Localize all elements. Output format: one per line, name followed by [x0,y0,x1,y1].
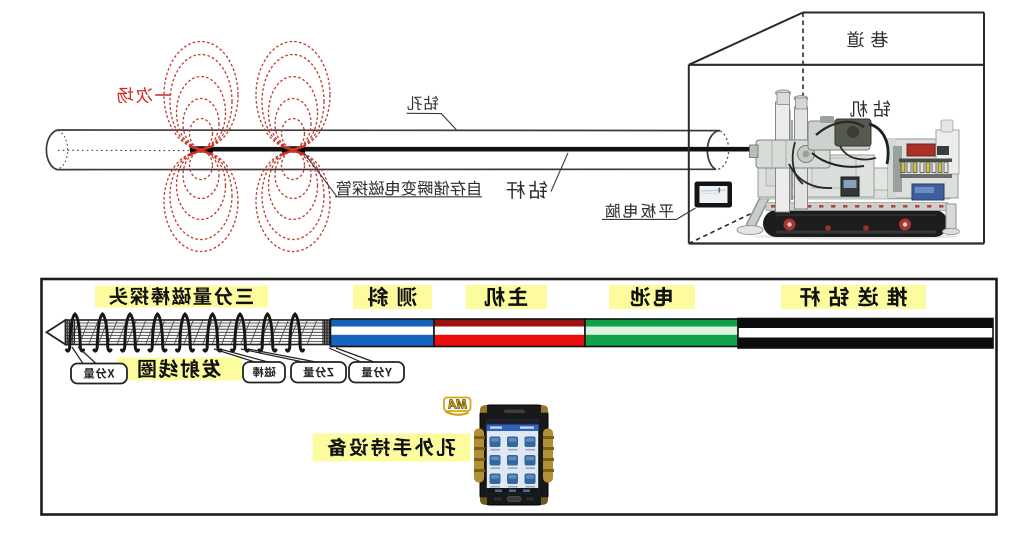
svg-text:MA: MA [448,398,467,412]
